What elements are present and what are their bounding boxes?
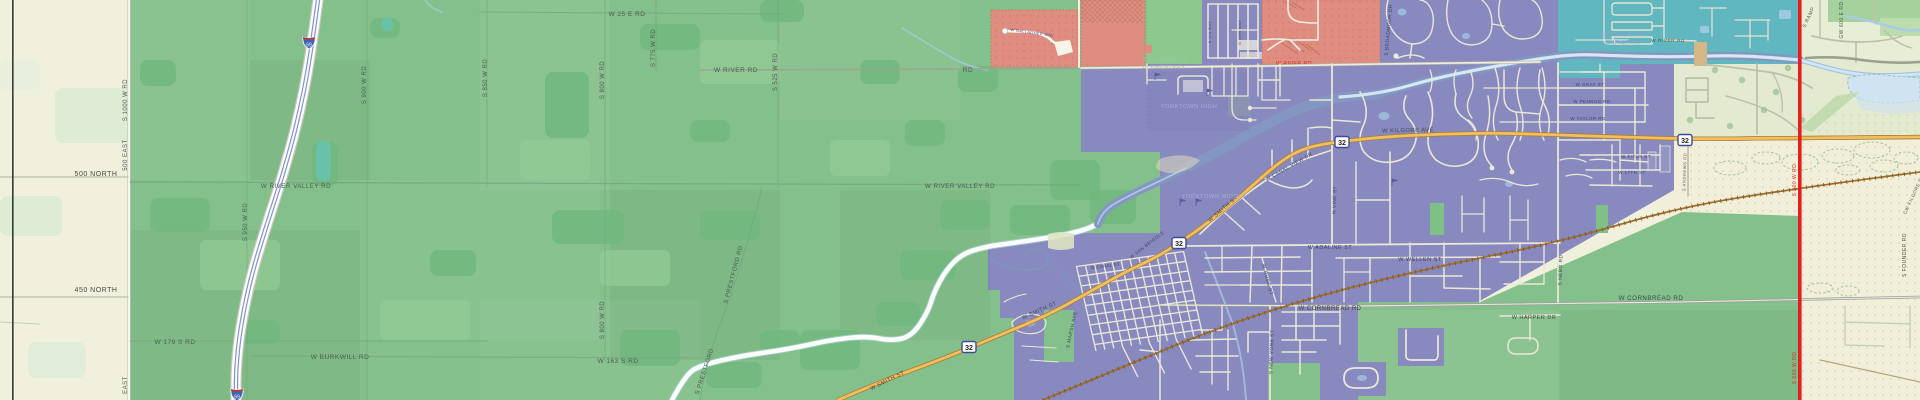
svg-text:S 775 W RD: S 775 W RD [651, 29, 657, 68]
svg-text:W GRAY ST: W GRAY ST [1576, 82, 1605, 87]
svg-text:W 179 S RD: W 179 S RD [154, 339, 195, 346]
svg-text:YORKTOWN HIGH: YORKTOWN HIGH [1161, 104, 1218, 110]
svg-text:W RIVER RD: W RIVER RD [1651, 38, 1685, 44]
svg-text:GW 600 E RD: GW 600 E RD [1839, 1, 1845, 38]
svg-text:S 800 W RD: S 800 W RD [600, 61, 606, 100]
svg-text:W RIVER VALLEY RD: W RIVER VALLEY RD [925, 183, 995, 190]
svg-text:450 NORTH: 450 NORTH [75, 287, 118, 294]
svg-text:N ORR WAY: N ORR WAY [1238, 19, 1242, 44]
svg-text:W HARPER DR: W HARPER DR [1512, 315, 1557, 321]
svg-text:YORKTOWN MIDDLE: YORKTOWN MIDDLE [1181, 194, 1246, 200]
svg-text:W RIVER VALLEY RD: W RIVER VALLEY RD [261, 183, 331, 190]
svg-text:S 600 W RD: S 600 W RD [1792, 352, 1798, 385]
svg-text:W CORNBREAD RD: W CORNBREAD RD [1298, 306, 1361, 312]
svg-text:S 850 W RD: S 850 W RD [483, 59, 489, 98]
svg-text:W RIVER RD: W RIVER RD [714, 67, 758, 74]
svg-text:32: 32 [1338, 140, 1346, 147]
svg-text:32: 32 [1175, 241, 1183, 248]
svg-text:500 EAST: 500 EAST [123, 139, 129, 170]
svg-text:W 25 E RD: W 25 E RD [608, 11, 645, 18]
svg-text:W CORNBREAD RD: W CORNBREAD RD [1619, 295, 1684, 302]
svg-text:HERITAGE HALL: HERITAGE HALL [1600, 32, 1650, 38]
svg-text:W 163 S RD: W 163 S RD [597, 358, 638, 365]
svg-text:S 950 W RD: S 950 W RD [243, 203, 249, 242]
svg-text:32: 32 [1681, 138, 1689, 145]
svg-text:500 NORTH: 500 NORTH [75, 171, 118, 178]
svg-text:W 17TH ST: W 17TH ST [1618, 170, 1645, 175]
svg-text:N VIA WAY: N VIA WAY [1208, 21, 1212, 44]
svg-text:S NEBO RD: S NEBO RD [1557, 254, 1564, 285]
svg-text:W ADALINE ST: W ADALINE ST [1308, 245, 1353, 251]
svg-text:W TAYLOR RD: W TAYLOR RD [1570, 116, 1605, 121]
svg-text:W PENROD RD: W PENROD RD [1573, 99, 1610, 104]
svg-text:RD: RD [963, 67, 973, 74]
svg-text:S 1000 W RD: S 1000 W RD [123, 79, 129, 121]
svg-text:EAST: EAST [123, 376, 129, 394]
svg-text:S 900 W RD: S 900 W RD [362, 66, 368, 105]
svg-text:S FOUNDER RD: S FOUNDER RD [1902, 233, 1908, 277]
svg-text:32: 32 [965, 345, 973, 352]
svg-text:ELEMENTARY: ELEMENTARY [1143, 65, 1185, 71]
svg-text:69: 69 [306, 43, 312, 49]
svg-text:W KILGORE AVE: W KILGORE AVE [1382, 128, 1434, 135]
svg-text:S 525 W RD: S 525 W RD [773, 53, 779, 92]
svg-text:N VINE ST: N VINE ST [1332, 186, 1339, 214]
svg-text:PLEASANT VIE: PLEASANT VIE [1143, 57, 1189, 63]
svg-text:W BURKWILL RD: W BURKWILL RD [311, 354, 370, 361]
svg-text:CHRISTIAN: CHRISTIAN [1606, 40, 1641, 46]
svg-text:69: 69 [234, 395, 240, 400]
svg-text:W WELLEN ST: W WELLEN ST [1398, 257, 1442, 263]
svg-text:S 600 W RD: S 600 W RD [1792, 164, 1798, 197]
svg-text:S 800 W RD: S 800 W RD [600, 301, 606, 340]
svg-text:W TITUS ST: W TITUS ST [1621, 154, 1651, 159]
